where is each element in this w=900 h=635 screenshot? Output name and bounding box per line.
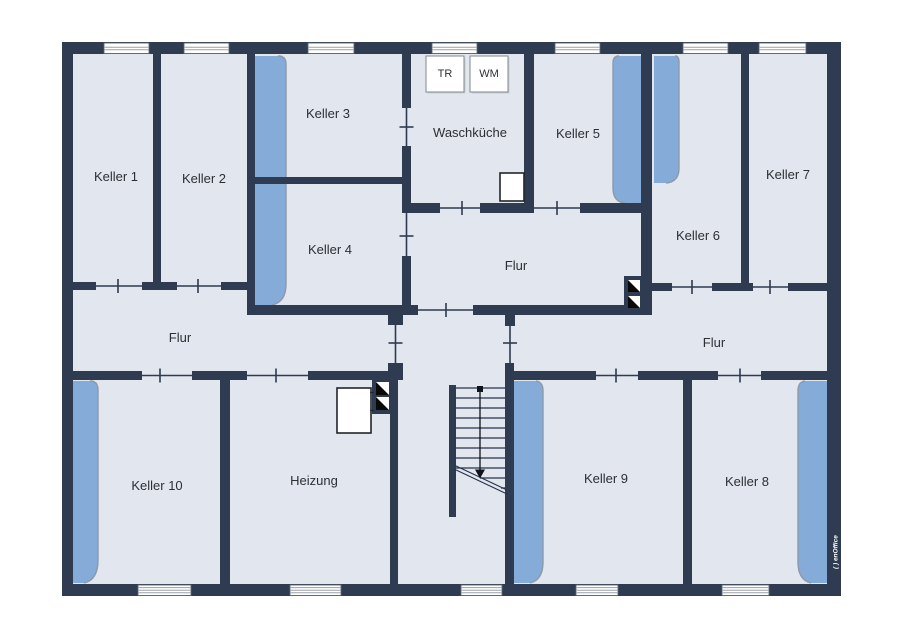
svg-text:Keller 2: Keller 2	[182, 171, 226, 186]
svg-text:Keller 4: Keller 4	[308, 242, 352, 257]
svg-text:Keller 9: Keller 9	[584, 471, 628, 486]
svg-text:Keller 7: Keller 7	[766, 167, 810, 182]
svg-text:Keller 3: Keller 3	[306, 106, 350, 121]
svg-text:TR: TR	[438, 68, 453, 80]
svg-text:Flur: Flur	[703, 335, 726, 350]
svg-text:( ) enOffice: ( ) enOffice	[833, 535, 840, 569]
svg-text:Keller 10: Keller 10	[131, 478, 182, 493]
svg-text:Keller 5: Keller 5	[556, 126, 600, 141]
svg-text:Flur: Flur	[505, 258, 528, 273]
svg-text:WM: WM	[479, 68, 499, 80]
svg-text:Heizung: Heizung	[290, 473, 338, 488]
svg-text:Waschküche: Waschküche	[433, 125, 507, 140]
svg-text:Keller 8: Keller 8	[725, 474, 769, 489]
svg-text:Flur: Flur	[169, 330, 192, 345]
svg-text:Keller 6: Keller 6	[676, 228, 720, 243]
svg-text:Keller 1: Keller 1	[94, 169, 138, 184]
